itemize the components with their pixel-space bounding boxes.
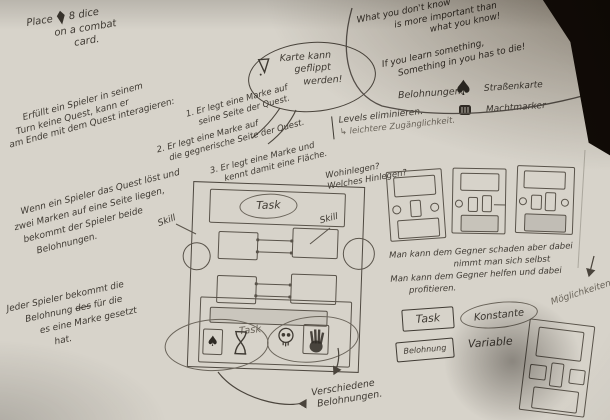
connector-dot	[290, 239, 293, 242]
legend-belohnung-label: Belohnung	[403, 343, 447, 357]
legend-task-box: Task	[401, 306, 454, 332]
left-token-circle	[182, 242, 211, 271]
rules-intro: Erfüllt ein Spieler in seinem Turn keine…	[2, 74, 176, 152]
card-sketch-variant-1	[386, 168, 447, 242]
card3-top-slot	[523, 170, 566, 189]
fist-icon	[457, 102, 473, 118]
legend-task-label: Task	[415, 311, 440, 327]
connector-dot	[255, 282, 258, 285]
legend-konstante-label: Konstante	[473, 306, 524, 324]
connector-dot	[289, 283, 292, 286]
para-two-marks: Wenn ein Spieler das Quest löst und zwei…	[2, 167, 192, 265]
skill-slot-upper-right	[292, 228, 339, 260]
card1-top-slot	[393, 175, 436, 198]
card-sketch-variant-3	[515, 165, 575, 235]
card1-mid-slot	[410, 200, 422, 218]
card-sketch-bottom-right	[519, 318, 596, 417]
card2-connector	[494, 204, 506, 205]
card3-left-token	[519, 197, 527, 205]
bubble-line3: werden!	[303, 74, 343, 89]
reward-label-1: Straßenkarte	[484, 80, 544, 96]
card3-bottom-slot	[524, 213, 567, 232]
para-opponent: Man kann dem Gegner schaden aber dabei n…	[389, 241, 575, 298]
skill-slot-upper-left	[218, 231, 259, 260]
reward-group-left-circle	[163, 316, 270, 373]
connector-dot	[256, 238, 259, 241]
spade-icon: ♠	[454, 76, 473, 100]
connector-dot	[288, 295, 291, 298]
connector-dot	[254, 294, 257, 297]
card2-mid-slot-b	[482, 195, 492, 212]
card3-mid-slot-a	[531, 195, 543, 210]
card2-bottom-slot	[460, 215, 498, 233]
lower-connector-a	[257, 283, 291, 285]
para-each-player: Jeder Spieler bekommt die Belohnung des …	[6, 277, 142, 358]
connector-dot	[256, 250, 259, 253]
right-token-circle	[342, 237, 375, 270]
arrow-left-ellipse-to-various	[218, 372, 306, 404]
photo-of-game-design-notes: Place 8 dice on a combat card. What you …	[0, 0, 610, 420]
card2-left-token	[455, 200, 463, 208]
upper-connector-a	[258, 239, 292, 241]
legend-konstante-circle: Konstante	[459, 298, 539, 332]
lower-connector-b	[256, 295, 290, 297]
card3-right-token	[561, 199, 569, 207]
bubble-text: Karte kann geflippt werden!	[279, 49, 343, 90]
task-label-top: Task	[256, 199, 281, 214]
various-rewards-label: Verschiedene Belohnungen.	[310, 377, 383, 412]
br-mid-slot-c	[568, 369, 586, 386]
br-top-slot	[535, 326, 584, 361]
levels-note: Levels eliminieren. ↳ leichtere Zugängli…	[331, 104, 455, 139]
die-icon	[55, 9, 67, 26]
connector-dot	[290, 251, 293, 254]
card2-mid-slot-a	[468, 197, 478, 212]
card1-bottom-slot	[397, 217, 440, 239]
quest-card-sketch: Task Task ♠	[187, 181, 365, 373]
card-sketch-variant-2	[451, 168, 506, 235]
card3-mid-slot-b	[545, 192, 557, 211]
legend-belohnung-box: Belohnung	[395, 338, 455, 363]
card2-top-slot	[460, 173, 499, 192]
legend-variable-label: Variable	[468, 334, 514, 351]
br-mid-slot-a	[528, 364, 547, 381]
upper-connector-b	[258, 251, 292, 253]
card1-left-token	[392, 205, 402, 215]
moeglichkeiten-down-arrow	[589, 256, 594, 276]
note-place-dice: Place 8 dice on a combat card.	[25, 1, 119, 56]
paper-fold-line	[578, 150, 585, 268]
br-bottom-slot	[531, 386, 579, 413]
note-place-word: Place	[26, 14, 54, 29]
reward-label-2: Machtmarker	[486, 101, 547, 117]
flip-icon	[257, 57, 272, 77]
para2-line2-strike: des	[74, 301, 92, 314]
card1-right-token	[430, 202, 440, 212]
br-mid-slot-b	[549, 362, 565, 387]
